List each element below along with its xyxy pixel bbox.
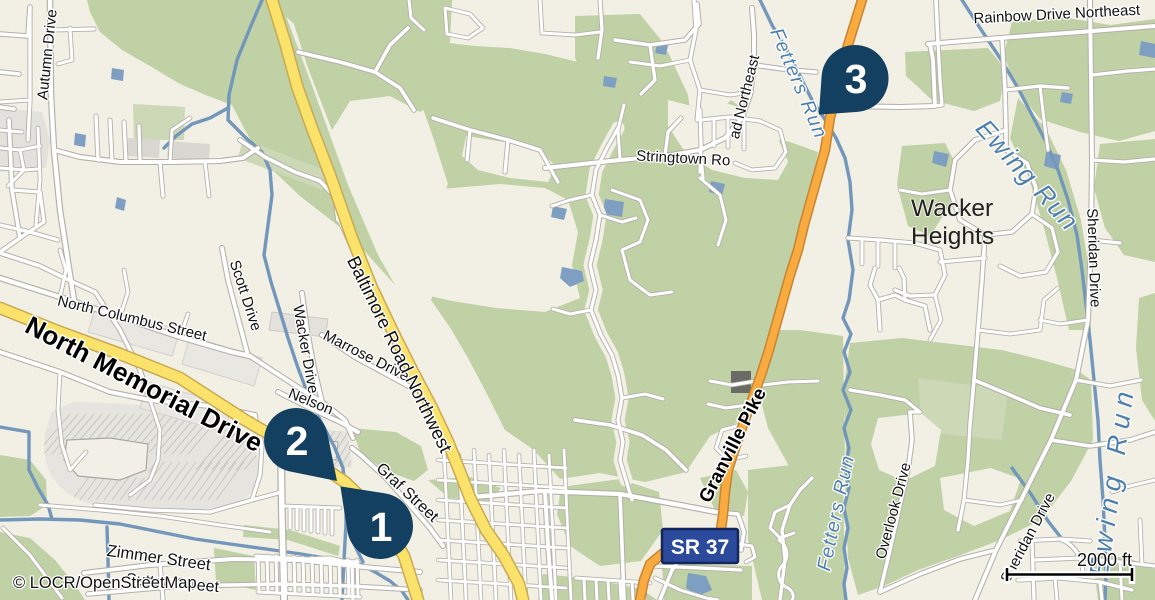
svg-text:SR 37: SR 37 xyxy=(671,536,729,559)
svg-text:1: 1 xyxy=(370,504,393,550)
svg-text:Heights: Heights xyxy=(911,223,994,250)
svg-text:3: 3 xyxy=(845,56,868,102)
svg-text:2000 ft: 2000 ft xyxy=(1077,550,1132,570)
svg-text:Wacker: Wacker xyxy=(911,195,993,222)
svg-text:© LOCR/OpenStreetMap: © LOCR/OpenStreetMap xyxy=(13,574,197,592)
svg-text:2: 2 xyxy=(286,418,309,464)
svg-text:Sheridan Drive: Sheridan Drive xyxy=(1083,208,1103,308)
